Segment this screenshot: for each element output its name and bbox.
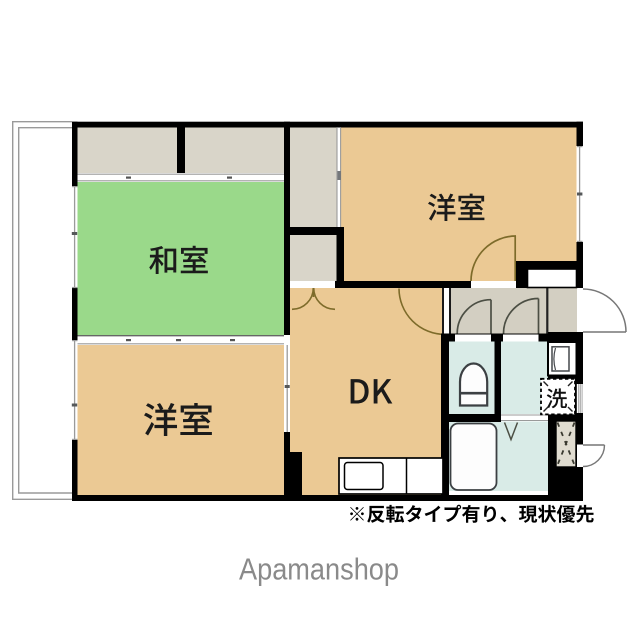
svg-text:Apamanshop: Apamanshop bbox=[239, 553, 399, 587]
